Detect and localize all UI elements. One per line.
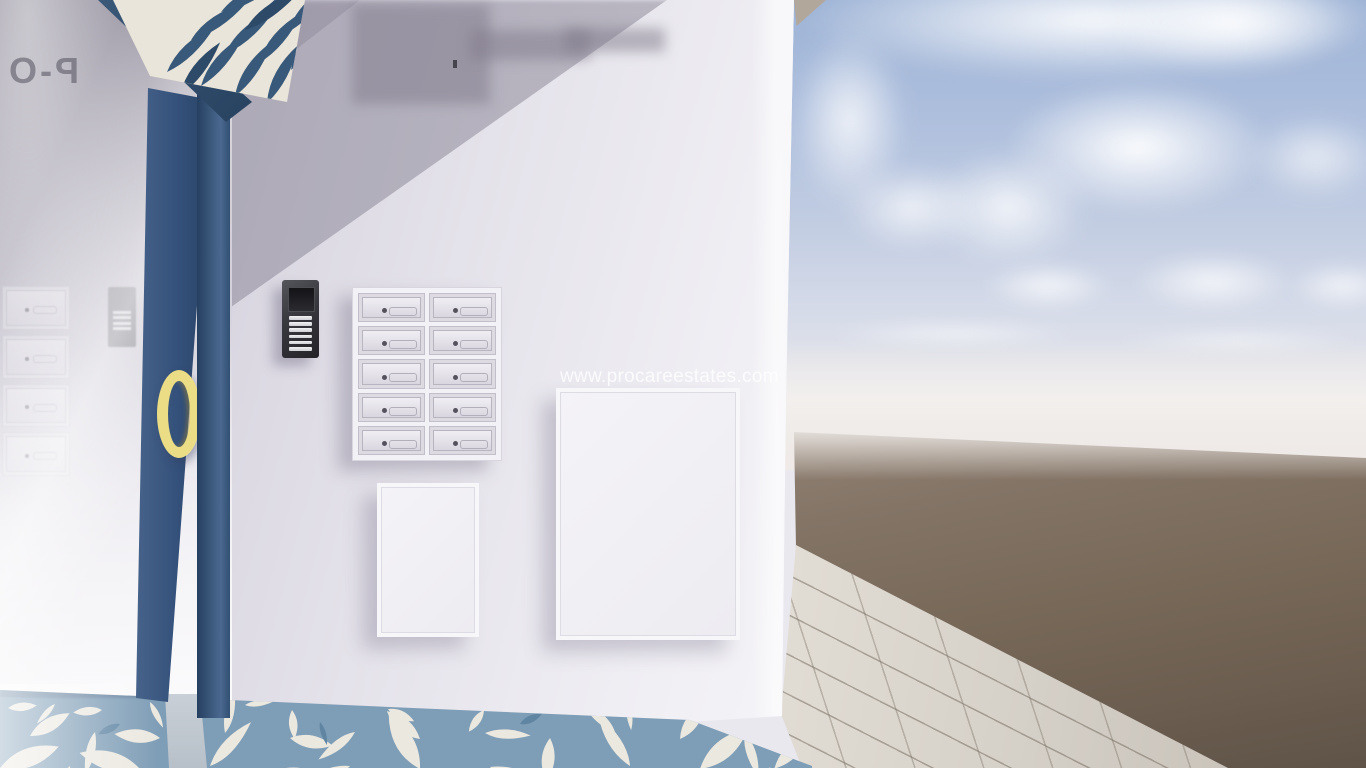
mailbox-door: [358, 426, 425, 455]
mailbox-bank: [352, 287, 502, 461]
mailbox-name-slot: [460, 307, 488, 316]
mailbox-door: [429, 326, 496, 355]
mailbox-name-slot: [389, 340, 417, 349]
watermark-text: www.procareestates.com: [560, 366, 820, 388]
outdoor-area: [778, 0, 1366, 768]
intercom-button: [289, 341, 312, 345]
intercom-button: [289, 316, 312, 320]
mailbox-door: [358, 359, 425, 388]
mailbox-door: [358, 326, 425, 355]
blank-frame-large: [556, 388, 740, 640]
cloud: [1133, 252, 1293, 312]
cloud: [983, 262, 1113, 310]
intercom-button: [289, 322, 312, 326]
mailbox-door: [358, 293, 425, 322]
intercom-screen: [288, 287, 315, 312]
mailbox-name-slot: [389, 307, 417, 316]
mailbox-name-slot: [460, 373, 488, 382]
mailbox-name-slot: [389, 440, 417, 449]
horizon-haze: [778, 340, 1366, 480]
mailbox-door: [358, 393, 425, 422]
cloud: [1288, 262, 1366, 310]
render-scene: www.procareestates.com P-O: [0, 0, 1366, 768]
mailbox-door: [429, 426, 496, 455]
wall-smudge: [565, 28, 665, 52]
mailbox-name-slot: [460, 440, 488, 449]
mailbox-door: [429, 293, 496, 322]
mirrored-signage-text: P-O: [6, 50, 79, 92]
mailbox-name-slot: [460, 407, 488, 416]
cloud: [792, 30, 907, 210]
mailbox-keyhole: [453, 375, 458, 380]
intercom-panel: [282, 280, 319, 358]
intercom-button: [289, 335, 312, 339]
mailbox-name-slot: [389, 407, 417, 416]
mailbox-name-slot: [460, 340, 488, 349]
wall-fixture-dot: [453, 60, 457, 68]
door-frame-post-blue: [197, 84, 230, 718]
mailbox-keyhole: [382, 375, 387, 380]
cloud: [1248, 115, 1366, 200]
floor-reflection-haze: [0, 684, 160, 768]
intercom-button: [289, 328, 312, 332]
mailbox-name-slot: [389, 373, 417, 382]
mailbox-door: [429, 393, 496, 422]
mailbox-door: [429, 359, 496, 388]
blank-frame-small: [377, 483, 479, 637]
round-door-handle: [157, 370, 201, 458]
intercom-button: [289, 347, 312, 351]
intercom-buttons: [289, 316, 312, 351]
